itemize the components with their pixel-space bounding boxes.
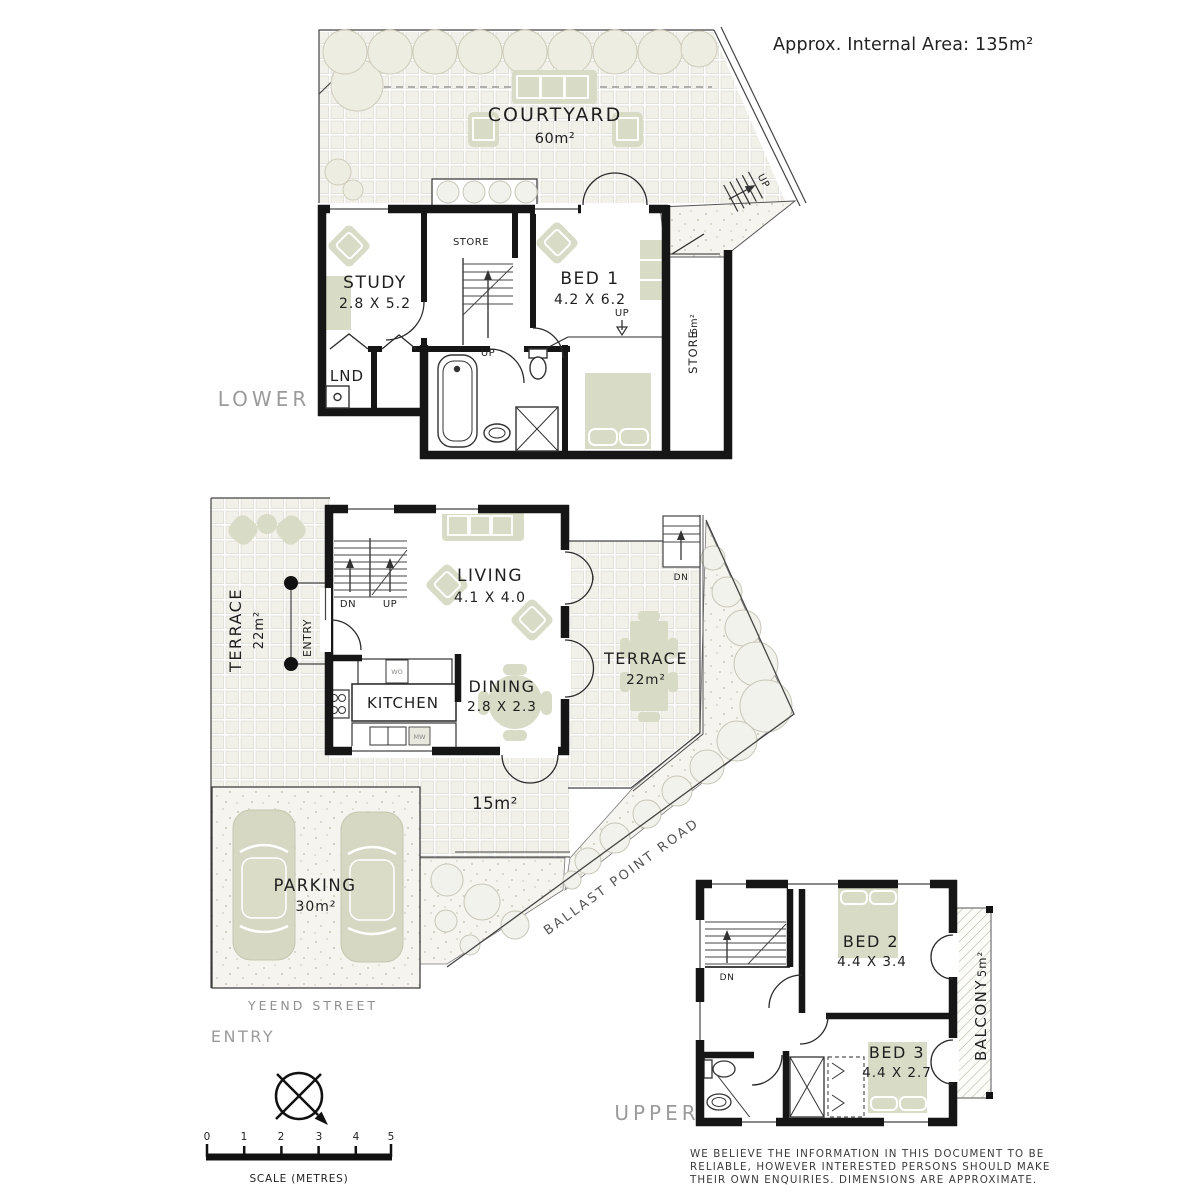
living-dims: 4.1 X 4.0 <box>454 590 526 606</box>
disclaimer-line-1: WE BELIEVE THE INFORMATION IN THIS DOCUM… <box>690 1148 1044 1160</box>
balcony-label: BALCONY <box>972 979 990 1061</box>
bed1-dims: 4.2 X 6.2 <box>554 292 626 308</box>
scale-tick-5: 5 <box>388 1131 395 1143</box>
upper-level-label: UPPER <box>614 1101 699 1125</box>
scale-tick-3: 3 <box>316 1131 323 1143</box>
store-label: STORE <box>453 237 489 248</box>
scale-caption: SCALE (METRES) <box>249 1173 348 1185</box>
entry-label: ENTRY <box>211 1027 275 1046</box>
lower-level-label: LOWER <box>218 387 310 411</box>
scale-tick-4: 4 <box>353 1131 360 1143</box>
stairs-up-label: UP <box>383 599 397 610</box>
stairs-up-label: UP <box>481 348 495 359</box>
lower-fixtures <box>326 349 558 451</box>
dining-label: DINING <box>468 677 535 696</box>
terrace-left-area: 22m² <box>252 611 267 649</box>
study-label: STUDY <box>343 273 407 293</box>
upper-stairs <box>703 922 790 967</box>
scale-tick-0: 0 <box>204 1131 211 1143</box>
toilet-bowl <box>530 357 546 379</box>
entry-porch-label: ENTRY <box>301 619 314 657</box>
oven-label: WO <box>391 668 403 676</box>
balcony-area-label: 5m² <box>975 951 989 977</box>
bed1-step-marker <box>617 320 627 335</box>
upper-toilet-bowl <box>713 1061 735 1077</box>
ground-stairs <box>334 538 407 597</box>
disclaimer-line-2: RELIABLE, HOWEVER INTERESTED PERSONS SHO… <box>690 1161 1050 1173</box>
floorplan-page: Approx. Internal Area: 135m² <box>0 0 1200 1200</box>
dining-dims: 2.8 X 2.3 <box>467 699 537 715</box>
bed2-dims: 4.4 X 3.4 <box>837 954 907 970</box>
upper-stairs-dn-label: DN <box>720 973 735 983</box>
planter-box <box>432 179 537 206</box>
upper-toilet-tank <box>704 1060 712 1078</box>
microwave-label: MW <box>413 733 426 741</box>
bed3-label: BED 3 <box>869 1043 925 1062</box>
terrace-right-label: TERRACE <box>603 649 688 668</box>
parking-area-label: 30m² <box>295 899 336 915</box>
internal-area-label: Approx. Internal Area: 135m² <box>773 35 1033 55</box>
bed2-label: BED 2 <box>843 932 899 951</box>
bed3-dims: 4.4 X 2.7 <box>862 1065 932 1081</box>
bed1-label: BED 1 <box>560 269 619 289</box>
upper-floor-plan: BED 2 4.4 X 3.4 BED 3 4.4 X 2.7 DN BALCO… <box>614 879 993 1127</box>
scale-tick-1: 1 <box>241 1131 248 1143</box>
compass <box>276 1073 328 1125</box>
courtyard-area: 60m² <box>535 131 575 147</box>
stairs-dn-label: DN <box>340 599 356 610</box>
laundry-label: LND <box>330 367 364 385</box>
floorplan-canvas: Approx. Internal Area: 135m² <box>0 0 1200 1200</box>
terrace-left-label: TERRACE <box>226 588 245 673</box>
parking-label: PARKING <box>274 876 357 895</box>
courtyard-label: COURTYARD <box>488 104 623 126</box>
terrace-stairs-dn-label: DN <box>674 573 689 583</box>
bed1-step-label: UP <box>615 308 629 319</box>
street-name-label: YEEND STREET <box>247 998 378 1013</box>
terrace-stairs <box>663 516 700 567</box>
side-store-label: STORE <box>686 330 700 374</box>
disclaimer: WE BELIEVE THE INFORMATION IN THIS DOCUM… <box>689 1148 1050 1186</box>
scale-tick-2: 2 <box>278 1131 285 1143</box>
study-dims: 2.8 X 5.2 <box>339 296 411 312</box>
kitchen-label: KITCHEN <box>367 694 439 712</box>
terrace-right-area: 22m² <box>626 672 666 688</box>
disclaimer-line-3: THEIR OWN ENQUIRIES. DIMENSIONS ARE APPR… <box>689 1174 1037 1186</box>
side-store-area: 6m² <box>689 314 700 335</box>
living-label: LIVING <box>457 566 523 586</box>
lower-floor-plan: UP <box>218 27 806 459</box>
path-area-label: 15m² <box>472 794 518 813</box>
wardrobe <box>828 1057 864 1117</box>
scale-bar: 0 1 2 3 4 5 SCALE (METRES) <box>204 1131 395 1185</box>
